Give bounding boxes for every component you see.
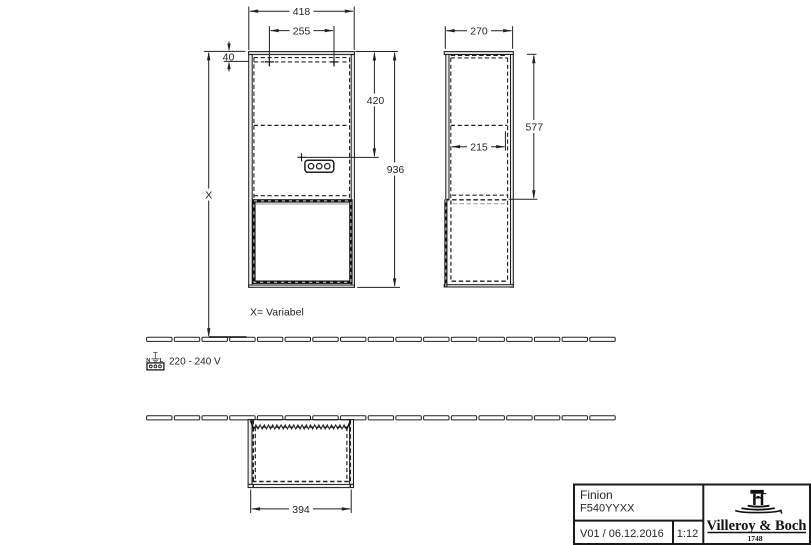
svg-text:255: 255 — [293, 26, 311, 38]
svg-text:V01 / 06.12.2016: V01 / 06.12.2016 — [580, 528, 664, 540]
svg-text:X= Variabel: X= Variabel — [250, 306, 304, 318]
svg-text:Finion: Finion — [580, 488, 613, 502]
svg-text:Villeroy & Boch: Villeroy & Boch — [707, 518, 807, 534]
svg-text:215: 215 — [470, 142, 488, 154]
svg-text:F540YYXX: F540YYXX — [580, 503, 635, 515]
svg-text:418: 418 — [293, 6, 311, 18]
svg-text:577: 577 — [526, 122, 544, 134]
svg-text:394: 394 — [292, 504, 310, 516]
svg-text:220 - 240 V: 220 - 240 V — [169, 356, 221, 367]
svg-text:936: 936 — [387, 164, 405, 176]
svg-text:420: 420 — [367, 95, 385, 107]
svg-text:1748: 1748 — [748, 534, 763, 543]
svg-text:X: X — [205, 189, 212, 201]
svg-text:1:12: 1:12 — [677, 528, 698, 540]
svg-text:270: 270 — [470, 26, 488, 38]
svg-text:40: 40 — [223, 51, 235, 63]
